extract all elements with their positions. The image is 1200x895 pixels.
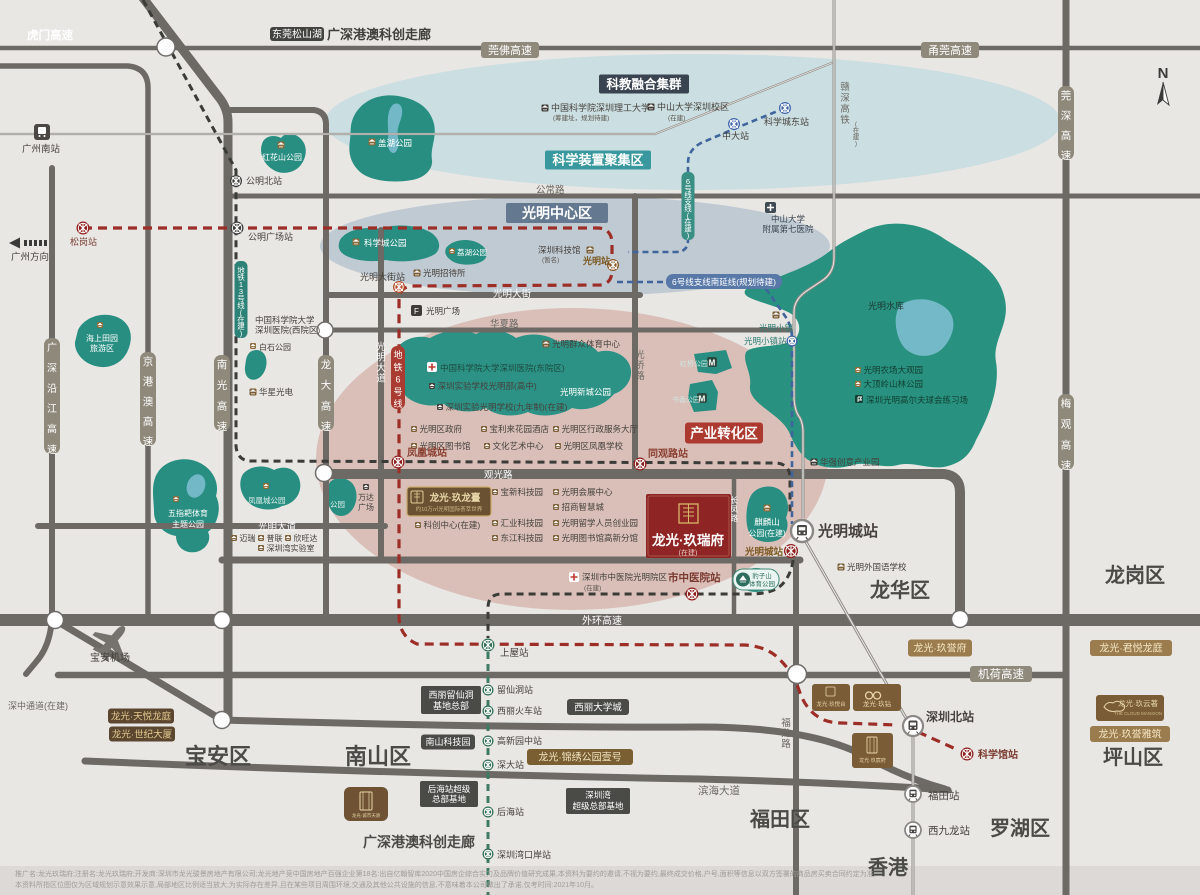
svg-text:龙光·玖誉雅筑: 龙光·玖誉雅筑 [1098,728,1161,741]
svg-text:基地总部: 基地总部 [433,700,469,711]
svg-text:南山区: 南山区 [345,744,411,769]
svg-text:龙岗区: 龙岗区 [1105,563,1165,587]
svg-text:龙光·世纪大厦: 龙光·世纪大厦 [112,728,173,740]
svg-text:光明站: 光明站 [582,255,610,266]
svg-text:中大站: 中大站 [722,130,749,141]
svg-text:光明城站: 光明城站 [817,522,878,540]
svg-text:约10万㎡光明国际荟萃世界: 约10万㎡光明国际荟萃世界 [416,505,483,513]
svg-text:光明区政府: 光明区政府 [420,424,463,434]
svg-text:后海站: 后海站 [497,806,524,817]
svg-text:外环高速: 外环高速 [582,614,622,627]
svg-text:(暂名): (暂名) [542,255,559,264]
svg-text:凤凰城站: 凤凰城站 [407,446,447,459]
svg-text:产业转化区: 产业转化区 [690,425,758,441]
svg-text:光明小镇: 光明小镇 [759,323,794,333]
svg-text:光明外国语学校: 光明外国语学校 [847,562,907,572]
svg-text:龙光·玖瑞府: 龙光·玖瑞府 [651,532,724,548]
svg-text:体育公园: 体育公园 [749,579,775,588]
svg-text:盖湖公园: 盖湖公园 [378,138,412,148]
svg-text:宝新科技园: 宝新科技园 [501,487,544,497]
svg-text:超级总部基地: 超级总部基地 [572,801,624,811]
svg-text:西九龙站: 西九龙站 [928,824,970,837]
svg-text:招商智慧城: 招商智慧城 [562,502,605,512]
svg-text:科教融合集群: 科教融合集群 [606,77,682,92]
svg-text:光明小镇站: 光明小镇站 [744,336,787,346]
svg-text:龙光·玖悦台: 龙光·玖悦台 [816,700,846,708]
svg-text:龙光·锦绣公园壹号: 龙光·锦绣公园壹号 [538,751,621,764]
svg-text:凤凰城公园: 凤凰城公园 [248,496,286,505]
svg-text:宝安机场: 宝安机场 [90,651,130,664]
svg-text:光明会展中心: 光明会展中心 [562,487,614,497]
svg-text:光明城站: 光明城站 [744,546,784,558]
svg-text:欣旺达: 欣旺达 [294,533,318,543]
svg-text:科学城东站: 科学城东站 [764,116,809,127]
svg-text:五指耙体育: 五指耙体育 [168,508,208,518]
svg-text:龙华区: 龙华区 [870,578,930,602]
svg-text:松岗站: 松岗站 [70,236,97,247]
svg-text:广州南站: 广州南站 [22,143,61,155]
svg-text:公园(在建): 公园(在建) [748,528,786,538]
svg-text:光明大街站: 光明大街站 [360,271,405,282]
svg-text:深圳湾: 深圳湾 [585,790,611,800]
svg-text:深圳湾口岸站: 深圳湾口岸站 [497,849,551,860]
svg-text:赣深高铁: 赣深高铁 [840,81,850,126]
svg-text:迈瑞: 迈瑞 [240,533,256,543]
svg-text:东莞松山湖: 东莞松山湖 [272,28,322,41]
svg-text:龙光·玖钻: 龙光·玖钻 [863,699,892,708]
svg-text:龙光·城市天骄: 龙光·城市天骄 [352,812,381,819]
svg-text:中山大学深圳校区: 中山大学深圳校区 [657,101,729,112]
svg-text:西丽留仙洞: 西丽留仙洞 [428,689,473,700]
svg-text:F: F [414,307,419,316]
svg-text:光明区行政服务大厅: 光明区行政服务大厅 [562,424,639,434]
svg-text:主题公园: 主题公园 [172,519,204,529]
svg-text:书香公园: 书香公园 [672,395,700,404]
svg-text:广深港澳科创走廊: 广深港澳科创走廊 [327,27,431,42]
svg-text:THE CLOUD MANSION: THE CLOUD MANSION [1114,711,1162,716]
svg-text:龙光·玖云著: 龙光·玖云著 [1118,698,1158,708]
svg-text:海上田园: 海上田园 [86,333,118,343]
svg-text:龙光·玖龙臺: 龙光·玖龙臺 [429,492,481,504]
svg-text:福田站: 福田站 [928,789,960,802]
svg-text:荔湖公园: 荔湖公园 [457,247,487,257]
svg-text:龙光·玖宸府: 龙光·玖宸府 [859,757,886,764]
svg-text:光明大道: 光明大道 [258,521,297,533]
svg-text:深圳北站: 深圳北站 [926,709,974,724]
svg-text:福田区: 福田区 [749,808,810,831]
svg-text:M: M [709,359,716,368]
svg-text:华强创意产业园: 华强创意产业园 [820,457,880,467]
svg-text:广场: 广场 [358,502,374,512]
svg-text:汇业科技园: 汇业科技园 [501,518,544,528]
svg-text:滨海大道: 滨海大道 [698,784,740,797]
svg-text:高新园中站: 高新园中站 [497,735,542,746]
svg-text:福龙路: 福龙路 [781,717,791,750]
svg-text:文化艺术中心: 文化艺术中心 [493,441,545,451]
svg-text:机荷高速: 机荷高速 [978,667,1024,681]
svg-text:光明水库: 光明水库 [868,300,904,311]
svg-text:中山大学: 中山大学 [771,214,806,224]
svg-text:深圳实验光明学校(九年制)(在建): 深圳实验光明学校(九年制)(在建) [446,402,568,412]
svg-text:光明大街: 光明大街 [493,288,532,300]
svg-text:旅游区: 旅游区 [90,343,114,353]
svg-text:万达: 万达 [358,492,374,502]
svg-text:地铁13号线(在建): 地铁13号线(在建) [237,265,245,338]
svg-text:(筹建址，规划待建): (筹建址，规划待建) [553,113,609,122]
svg-text:总部基地: 总部基地 [432,794,467,804]
svg-text:莞佛高速: 莞佛高速 [488,43,532,57]
svg-text:深圳湾实验室: 深圳湾实验室 [267,543,315,553]
svg-text:(在建): (在建) [679,548,698,557]
svg-text:深圳医院(西院区): 深圳医院(西院区) [255,325,320,335]
svg-text:留仙洞站: 留仙洞站 [497,684,533,695]
svg-text:中国科学院大学深圳医院(东院区): 中国科学院大学深圳医院(东院区) [440,363,565,373]
svg-text:红桥公园: 红桥公园 [680,359,708,368]
svg-text:光明图书馆高新分馆: 光明图书馆高新分馆 [562,533,639,543]
svg-text:中国科学院大学: 中国科学院大学 [255,315,315,325]
svg-text:6号线支线(在建): 6号线支线(在建) [684,177,692,240]
svg-text:红花山公园: 红花山公园 [262,152,302,162]
svg-text:科学馆站: 科学馆站 [978,748,1018,761]
svg-text:宝安区: 宝安区 [185,744,251,769]
svg-text:光明招待所: 光明招待所 [423,268,466,278]
svg-text:深圳实验学校光明部(高中): 深圳实验学校光明部(高中) [438,381,537,391]
svg-text:(在建): (在建) [668,113,685,122]
svg-text:光侨路: 光侨路 [635,349,645,382]
svg-text:深大站: 深大站 [497,759,524,770]
svg-text:公明广场站: 公明广场站 [248,231,293,242]
svg-text:推广名:龙光玖瑞府;注册名:龙光玖瑞府;开发商:深圳市龙光骏: 推广名:龙光玖瑞府;注册名:龙光玖瑞府;开发商:深圳市龙光骏景房地产有限公司;龙… [15,869,876,878]
svg-text:东江科技园: 东江科技园 [501,533,544,543]
svg-text:光明大道: 光明大道 [376,341,386,385]
svg-text:光明群众体育中心: 光明群众体育中心 [552,339,621,349]
svg-text:西丽火车站: 西丽火车站 [497,705,542,716]
svg-text:广深港澳科创走廊: 广深港澳科创走廊 [363,834,475,850]
svg-text:光明留学人员创业园: 光明留学人员创业园 [562,518,639,528]
svg-text:公明北站: 公明北站 [246,175,282,186]
svg-text:广州方向: 广州方向 [11,251,49,263]
svg-text:龙光·天悦龙庭: 龙光·天悦龙庭 [111,710,172,722]
svg-text:附属第七医院: 附属第七医院 [762,224,814,234]
svg-text:科创中心(在建): 科创中心(在建) [424,520,481,530]
svg-text:普联: 普联 [267,533,283,543]
svg-text:长凤路: 长凤路 [730,495,738,523]
svg-text:麒麟山: 麒麟山 [754,517,780,527]
svg-text:公园: 公园 [330,500,345,509]
svg-text:深圳科技馆: 深圳科技馆 [538,245,581,255]
svg-text:科学城公园: 科学城公园 [364,238,407,248]
svg-text:罗湖区: 罗湖区 [990,817,1050,840]
svg-text:南山科技园: 南山科技园 [425,736,470,747]
svg-text:西丽大学城: 西丽大学城 [574,701,622,713]
svg-text:白石公园: 白石公园 [259,342,291,352]
svg-text:宝利来花园酒店: 宝利来花园酒店 [490,424,550,434]
svg-text:深圳光明高尔夫球会练习场: 深圳光明高尔夫球会练习场 [866,395,968,405]
svg-text:华夏路: 华夏路 [490,318,519,330]
svg-text:光明区凤凰学校: 光明区凤凰学校 [564,441,624,451]
svg-text:科学装置聚集区: 科学装置聚集区 [552,153,643,168]
svg-text:深中通道(在建): 深中通道(在建) [8,700,68,711]
svg-text:同观路站: 同观路站 [648,447,688,460]
svg-text:华星光电: 华星光电 [259,387,294,397]
svg-text:上屋站: 上屋站 [500,647,529,659]
svg-text:豹子山: 豹子山 [752,571,772,580]
svg-text:光明中心区: 光明中心区 [521,205,592,221]
svg-text:光明农场大观园: 光明农场大观园 [864,365,924,375]
svg-text:光明新城公园: 光明新城公园 [560,387,611,397]
svg-text:深圳市中医院光明院区: 深圳市中医院光明院区 [582,572,668,582]
svg-text:大顶岭山林公园: 大顶岭山林公园 [864,379,924,389]
svg-text:6号线支线南延线(规划待建): 6号线支线南延线(规划待建) [672,277,776,287]
svg-text:观光路: 观光路 [484,469,513,481]
svg-text:虎门高速: 虎门高速 [27,28,73,42]
svg-text:(在建): (在建) [584,583,601,592]
svg-text:N: N [1158,65,1169,82]
svg-text:光明广场: 光明广场 [426,306,460,316]
svg-text:本资料所指区位图仅为区域规划示意效果示意,局部地区比例适当放: 本资料所指区位图仅为区域规划示意效果示意,局部地区比例适当放大,为实际存在差异,… [15,880,598,889]
svg-text:公常路: 公常路 [536,184,565,196]
svg-text:甬莞高速: 甬莞高速 [928,43,972,57]
svg-text:龙光·玖誉府: 龙光·玖誉府 [913,642,966,655]
svg-text:坪山区: 坪山区 [1103,746,1163,769]
svg-text:后海站超级: 后海站超级 [428,784,471,794]
svg-text:龙光·君悦龙庭: 龙光·君悦龙庭 [1099,642,1162,655]
svg-text:中国科学院深圳理工大学: 中国科学院深圳理工大学 [551,102,650,113]
svg-text:市中医院站: 市中医院站 [668,571,721,584]
